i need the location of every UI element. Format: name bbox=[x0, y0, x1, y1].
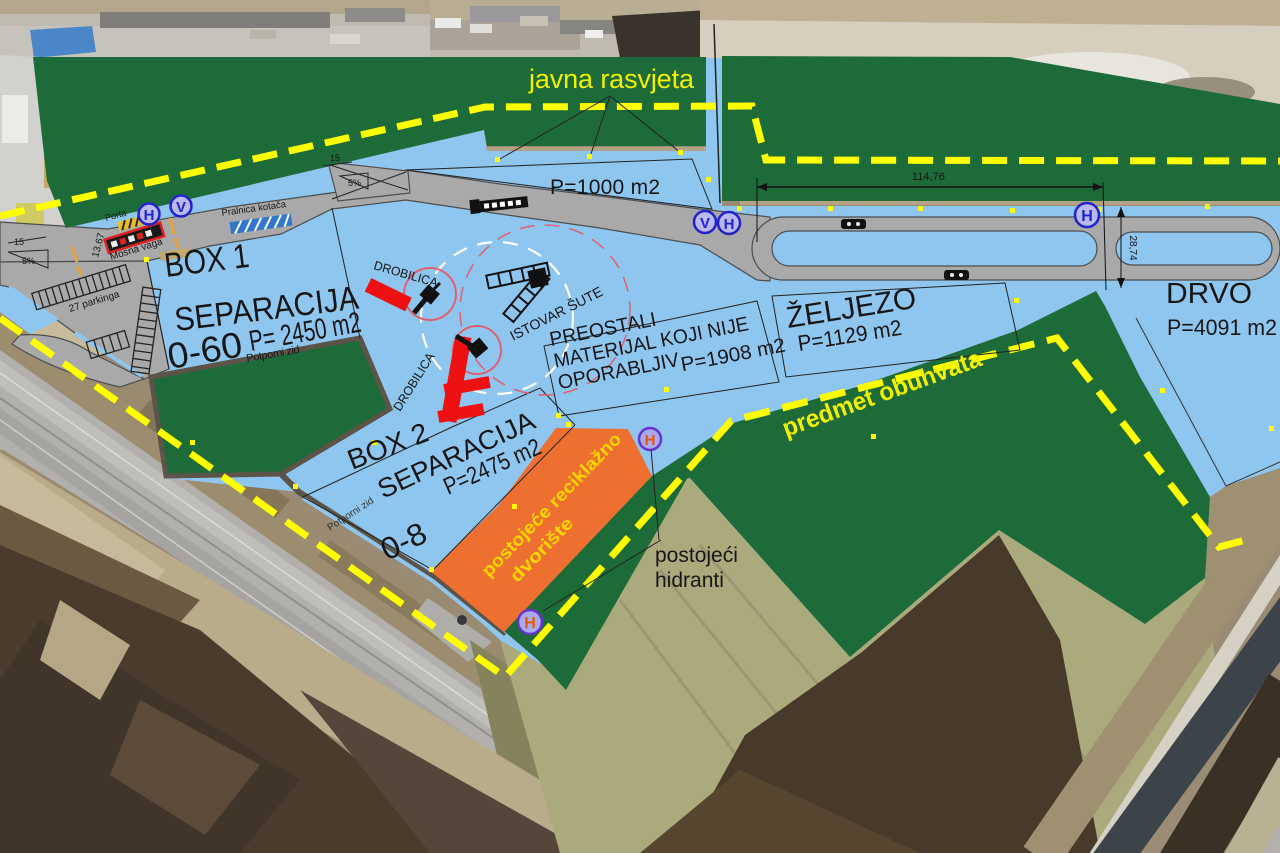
svg-text:H: H bbox=[724, 216, 735, 233]
svg-text:114,76: 114,76 bbox=[912, 171, 945, 183]
svg-text:V: V bbox=[700, 215, 710, 232]
svg-text:28,74: 28,74 bbox=[1127, 235, 1138, 260]
svg-text:javna rasvjeta: javna rasvjeta bbox=[528, 64, 695, 94]
svg-text:V: V bbox=[176, 199, 186, 216]
svg-text:H: H bbox=[524, 615, 536, 632]
svg-text:P=4091 m2: P=4091 m2 bbox=[1167, 315, 1277, 340]
svg-text:P=1000 m2: P=1000 m2 bbox=[550, 176, 660, 199]
svg-text:H: H bbox=[144, 207, 155, 224]
svg-text:DRVO: DRVO bbox=[1166, 278, 1252, 310]
svg-text:5%: 5% bbox=[22, 256, 35, 266]
svg-text:H: H bbox=[645, 432, 656, 449]
svg-text:5%: 5% bbox=[348, 178, 361, 188]
svg-text:H: H bbox=[1081, 208, 1093, 225]
svg-text:hidranti: hidranti bbox=[655, 569, 724, 592]
svg-text:15: 15 bbox=[14, 237, 24, 247]
svg-text:15: 15 bbox=[330, 153, 340, 163]
svg-text:postojeći: postojeći bbox=[655, 544, 738, 567]
